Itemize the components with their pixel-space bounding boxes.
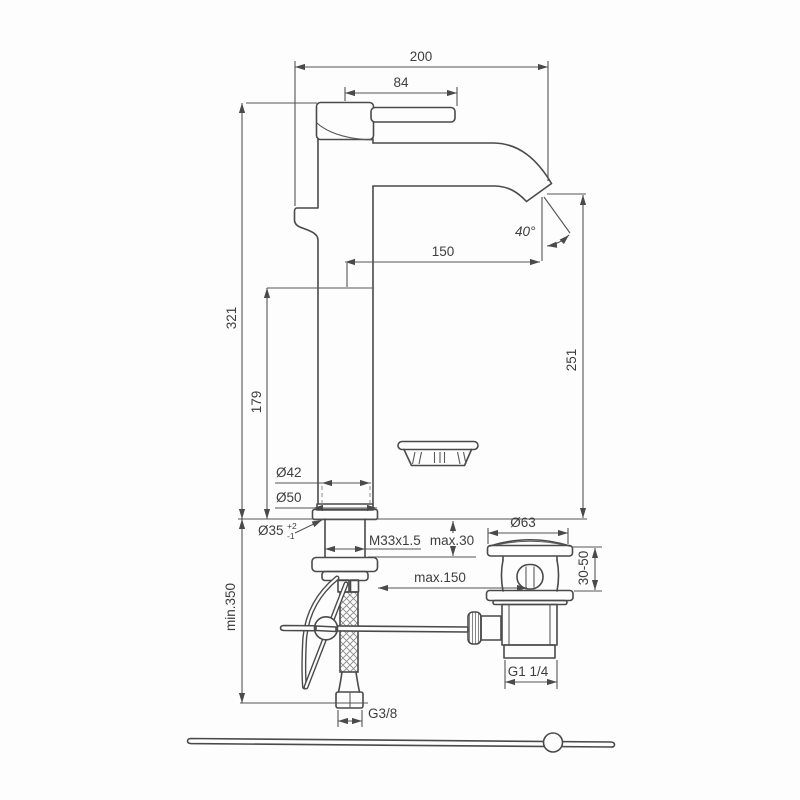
gasket-tabs: [413, 452, 467, 464]
dim-spout-angle: 40°: [515, 197, 570, 261]
dim-supply-thread: G3/8: [338, 706, 397, 727]
waste-rod-boss: [517, 565, 543, 590]
dim-label-waste-clamp-range: 30-50: [576, 551, 591, 586]
head-swoosh-line: [317, 123, 373, 140]
dim-label-spout-to-deck: 251: [564, 349, 579, 372]
dim-spout-to-deck: 251: [547, 194, 586, 518]
pull-rod-knob: [544, 733, 563, 752]
lever-handle: [371, 108, 455, 123]
dim-label-min-clearance: min.350: [223, 583, 238, 631]
dim-label-body-diameter: Ø42: [276, 465, 302, 480]
rod-connector-knurl: [468, 612, 481, 644]
dim-waste-thread: G1 1/4: [505, 660, 557, 689]
ext-line: [322, 486, 370, 505]
waste-lower-body-walls: [509, 605, 550, 646]
faucet-head: [317, 103, 374, 140]
dim-label-shank-thread: M33x1.5: [369, 533, 421, 548]
dim-label-waste-distance: max.150: [414, 570, 466, 585]
dim-label-spout-reach: 150: [432, 244, 455, 259]
leader-line: [295, 520, 322, 533]
drawing-canvas: 200 84 321 179 min.350 150 40° 251: [0, 0, 800, 800]
rod-connector-sleeve: [481, 616, 501, 640]
horizontal-rod: [281, 626, 469, 633]
dim-deck-thickness: max.30: [430, 521, 474, 556]
angle-arc: [547, 235, 569, 246]
dim-label-outlet-height: 179: [249, 391, 264, 414]
dim-label-spout-angle: 40°: [515, 224, 536, 239]
dim-label-deck-thickness: max.30: [430, 533, 474, 548]
dim-label-waste-flange-diameter: Ø63: [510, 515, 536, 530]
dim-label-total-height: 321: [224, 307, 239, 330]
waste-tailpiece: [504, 645, 555, 658]
dim-hole-diameter: Ø35 +2 -1: [258, 520, 322, 541]
braided-hose: [340, 592, 358, 672]
body-left-edge: [295, 139, 319, 504]
dim-outlet-height: 179: [249, 288, 372, 519]
dim-shank-thread: M33x1.5: [325, 533, 421, 549]
hose-end-taper: [339, 672, 360, 692]
waste-assembly: [468, 540, 573, 658]
waste-lower-body: [502, 605, 557, 646]
waste-top-flange: [488, 546, 573, 557]
mounting-gasket-detail: [398, 442, 478, 466]
dim-waste-clamp-range: 30-50: [572, 547, 602, 591]
dim-total-height: 321: [224, 103, 317, 519]
dim-label-handle-length: 84: [393, 75, 409, 90]
dim-spout-reach: 150: [345, 244, 540, 287]
dim-overall-width: 200: [295, 49, 548, 206]
fixing-washer: [312, 558, 378, 572]
technical-drawing: 200 84 321 179 min.350 150 40° 251: [0, 0, 800, 800]
base-plate: [313, 510, 378, 520]
dim-label-hole-tol-minus: -1: [287, 531, 295, 541]
dim-label-overall-width: 200: [410, 49, 433, 64]
dim-label-waste-thread: G1 1/4: [508, 664, 549, 679]
angle-leg: [544, 197, 570, 233]
pull-rod: [188, 733, 615, 752]
spout: [373, 143, 552, 202]
faucet-body: [295, 103, 552, 520]
fixing-nut: [322, 572, 368, 581]
waste-rod-boss-slots: [526, 567, 534, 588]
dim-waste-distance: max.150: [378, 570, 527, 588]
pop-up-linkage: [281, 584, 469, 687]
dim-base-diameter: Ø50: [275, 490, 377, 508]
dim-label-supply-thread: G3/8: [368, 706, 397, 721]
dim-handle-length: 84: [345, 75, 457, 106]
hose-crimp-right: [351, 580, 359, 592]
dim-label-hole-tol-plus: +2: [287, 521, 297, 531]
threaded-shank: [325, 519, 365, 557]
dim-label-hole-diameter: Ø35: [258, 523, 284, 538]
supply-hose-assembly: [304, 519, 378, 708]
waste-clamp-flange: [487, 591, 574, 601]
pivot-slot: [316, 626, 336, 632]
gasket-top-plate: [398, 442, 478, 450]
dim-label-base-diameter: Ø50: [276, 490, 302, 505]
